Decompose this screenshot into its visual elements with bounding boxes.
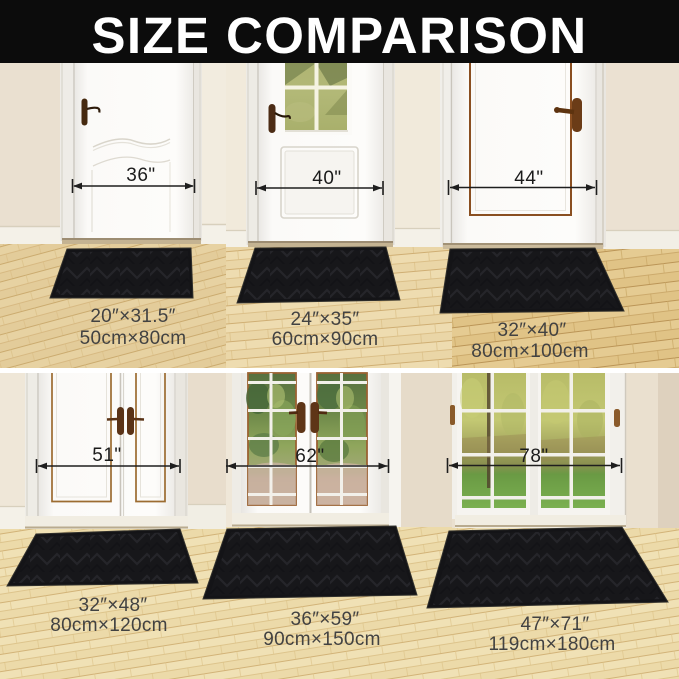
svg-text:62": 62" — [295, 446, 324, 467]
svg-text:32″×48″: 32″×48″ — [79, 595, 148, 616]
svg-text:90cm×150cm: 90cm×150cm — [263, 629, 381, 650]
svg-text:60cm×90cm: 60cm×90cm — [272, 329, 379, 350]
svg-text:50cm×80cm: 50cm×80cm — [80, 328, 187, 349]
svg-text:51": 51" — [92, 445, 121, 466]
svg-text:44": 44" — [514, 168, 543, 189]
svg-text:40": 40" — [312, 168, 341, 189]
svg-text:20″×31.5″: 20″×31.5″ — [90, 306, 175, 327]
svg-text:36″×59″: 36″×59″ — [291, 609, 360, 630]
svg-text:36": 36" — [126, 165, 155, 186]
svg-text:80cm×100cm: 80cm×100cm — [471, 341, 589, 362]
svg-text:24″×35″: 24″×35″ — [291, 309, 360, 330]
svg-text:32″×40″: 32″×40″ — [498, 320, 567, 341]
svg-text:80cm×120cm: 80cm×120cm — [50, 615, 168, 636]
svg-text:SIZE COMPARISON: SIZE COMPARISON — [91, 7, 587, 64]
svg-text:119cm×180cm: 119cm×180cm — [488, 634, 615, 655]
svg-text:78": 78" — [519, 446, 548, 467]
svg-text:47″×71″: 47″×71″ — [521, 614, 590, 635]
